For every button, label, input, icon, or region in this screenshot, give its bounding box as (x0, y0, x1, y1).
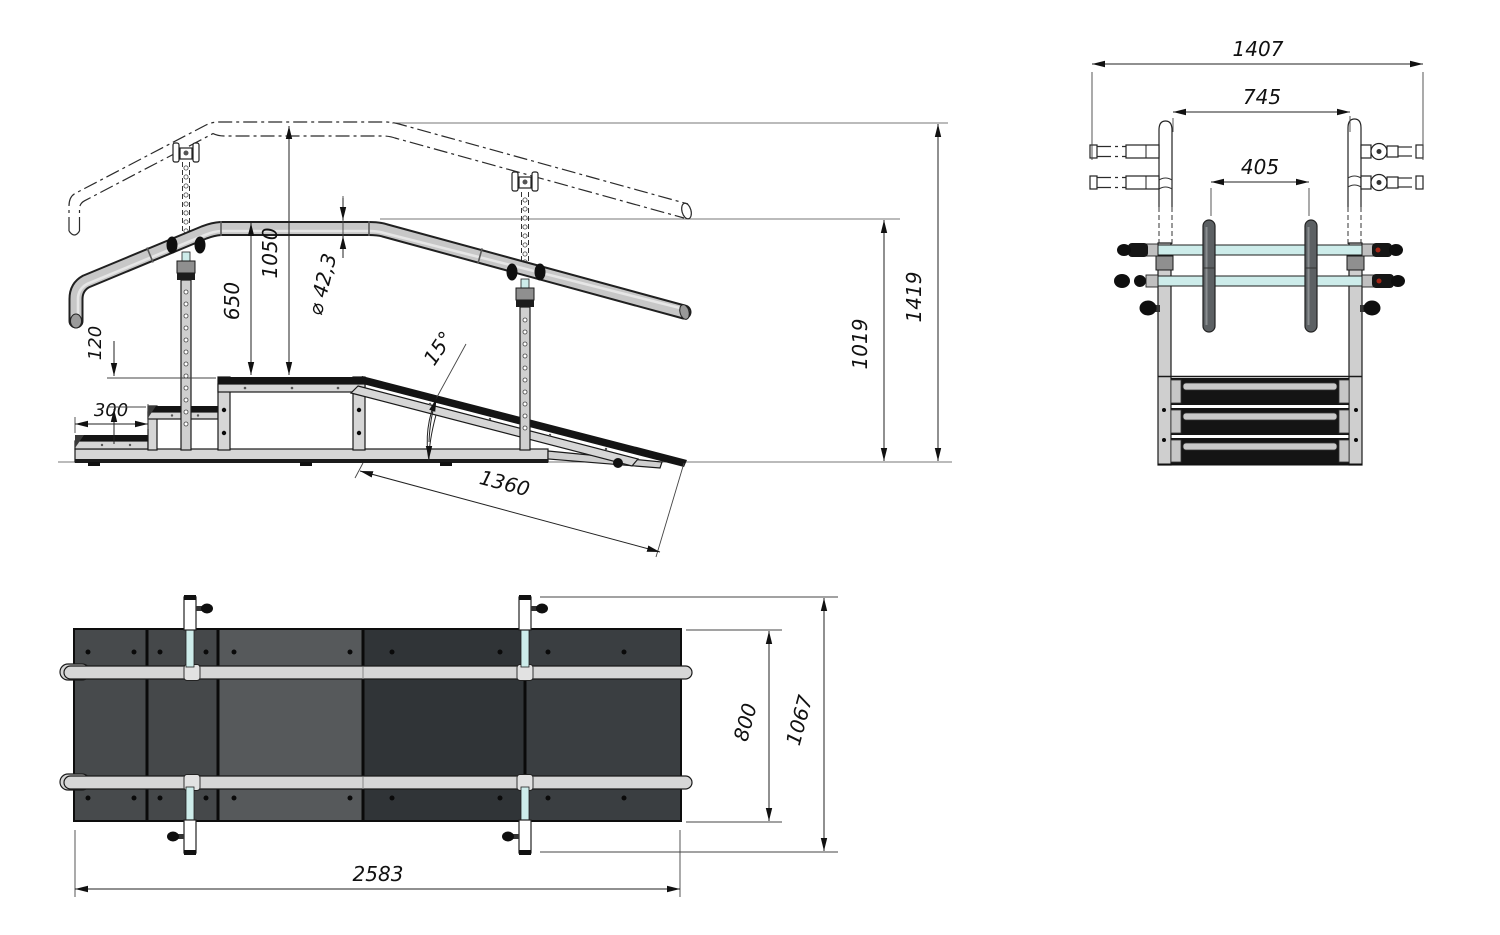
dim-handrail-spacing: 745 (1243, 85, 1281, 109)
dim-overall-plan-width: 1067 (781, 692, 817, 748)
crossbar-upper (1117, 243, 1403, 257)
dim-handrail-top-height: 1019 (848, 319, 872, 370)
plan-handrail-top (60, 664, 692, 681)
drawing-svg: 300 120 650 1050 ⌀ 42,3 15° 1360 1019 (0, 0, 1500, 935)
front-right-stub-tubes (1361, 144, 1423, 191)
phantom-handrail-raised-position (69, 122, 693, 235)
front-steps (1158, 377, 1362, 465)
dim-overall-width: 1407 (1233, 37, 1284, 61)
dim-handrail-low: 650 (220, 282, 244, 320)
front-left-rail-upright (1159, 121, 1172, 245)
base-frame (75, 449, 548, 466)
dim-ramp-length: 1360 (477, 465, 532, 501)
side-view-dimensions: 300 120 650 1050 ⌀ 42,3 15° 1360 1019 (75, 124, 938, 557)
front-right-post-clamp (1347, 256, 1364, 270)
front-left-stub-tubes (1090, 145, 1159, 189)
step-1 (75, 435, 148, 449)
technical-drawing-canvas: 300 120 650 1050 ⌀ 42,3 15° 1360 1019 (0, 0, 1500, 935)
right-post-inner-tube-holes (523, 198, 527, 264)
dim-step-rise: 120 (85, 326, 106, 360)
plan-panels (75, 630, 680, 820)
plan-handrail-bottom (60, 774, 692, 791)
front-left-post-clamp (1156, 256, 1173, 270)
dim-ramp-angle: 15° (418, 327, 458, 370)
ramp-roller (613, 458, 623, 468)
side-view (58, 122, 952, 468)
right-post (520, 192, 530, 450)
front-right-rail-upright (1348, 119, 1361, 245)
platform (218, 377, 365, 450)
dim-tube-diameter: ⌀ 42,3 (303, 251, 342, 318)
crossbar-lower (1114, 274, 1405, 288)
left-post (181, 162, 191, 450)
left-post-inner-tube-holes (184, 166, 188, 233)
dim-overall-length: 2583 (353, 862, 404, 886)
dim-overall-height: 1419 (902, 272, 926, 323)
handrail (71, 221, 691, 328)
top-view (60, 595, 692, 855)
post-lock-knobs (1140, 301, 1381, 316)
phantom-rail-clamp-right (512, 172, 538, 191)
dim-handrail-high: 1050 (258, 228, 282, 279)
phantom-rail-clamp-left (173, 143, 199, 162)
dim-step-depth: 300 (94, 400, 128, 421)
dim-walkway-width: 800 (729, 701, 762, 744)
dim-handle-spacing: 405 (1241, 155, 1279, 179)
